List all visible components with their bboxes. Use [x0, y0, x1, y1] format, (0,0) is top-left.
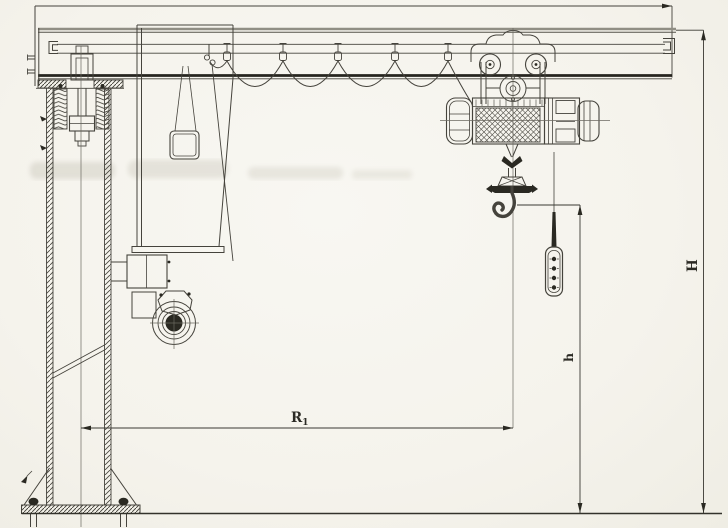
jib-top-outline — [35, 4, 672, 78]
base-plate — [22, 505, 141, 514]
control-box-body — [170, 131, 199, 159]
rope-drum — [476, 108, 540, 142]
pivot-shaft — [78, 88, 86, 116]
gusset-arrow — [21, 476, 28, 484]
dimension-radius: R1 — [81, 410, 513, 430]
pivot-tip-end — [78, 141, 86, 146]
terminal-box-bottom — [556, 129, 575, 142]
bearing-plate-right — [94, 80, 123, 88]
end-plate-bolts — [28, 55, 36, 75]
rope-socket — [502, 156, 523, 169]
motor-flange-rings — [549, 98, 553, 144]
flange-bolt — [159, 293, 162, 296]
frame-outline — [137, 25, 233, 247]
overall-height-label: H — [685, 259, 701, 272]
radius-label: R1 — [291, 410, 309, 428]
crossbar-horn-left — [486, 185, 492, 194]
pendant-strain-relief — [552, 212, 557, 247]
track-end-stop-right — [663, 39, 675, 54]
cable-anchor-clamp — [204, 55, 209, 60]
pendant-control — [546, 152, 563, 296]
anchor-bolt-right — [119, 498, 129, 506]
slew-drive — [111, 255, 199, 349]
column-base — [21, 468, 140, 527]
flange-bolt — [187, 292, 190, 295]
jib-beam — [28, 6, 677, 86]
pivot-tip — [75, 131, 89, 141]
hook-assembly — [486, 144, 538, 216]
dim-arrow-R-right — [503, 426, 513, 431]
anchor-bolt-left — [29, 498, 39, 506]
crossbar-horn-right — [532, 185, 538, 194]
track-end-stop-left — [49, 42, 58, 54]
rotating-frame — [132, 25, 233, 253]
motor-end-cap-lines — [584, 102, 590, 141]
control-box — [170, 66, 199, 159]
electric-hoist — [440, 28, 610, 428]
watermark-smudge — [30, 160, 412, 179]
gearbox-bolt — [168, 261, 171, 264]
dim-arrow-h-bottom — [578, 503, 583, 513]
drive-mount-links — [111, 262, 127, 281]
control-box-inner — [173, 134, 196, 156]
jib-envelope-line — [35, 6, 672, 78]
dim-arrow-h-top — [578, 205, 583, 215]
spring-stack-left — [54, 89, 67, 129]
bolt-head — [59, 84, 63, 88]
end-cap-lines — [449, 114, 470, 130]
gearbox-bolt — [168, 280, 171, 283]
hook-bell-cross — [498, 177, 526, 186]
festoon-loops — [210, 61, 471, 102]
dimension-hook-height: h — [517, 205, 582, 513]
wheel-axle — [489, 63, 492, 66]
motor-end-cap — [578, 101, 599, 141]
bolt-head — [101, 84, 105, 88]
dimension-overall-height: H — [676, 30, 706, 513]
festoon-track — [57, 44, 665, 53]
dim-arrow-H-bottom — [701, 503, 706, 513]
drive-lower-box — [132, 292, 156, 318]
hook-link — [509, 168, 516, 177]
arrowhead-right — [662, 4, 672, 9]
terminal-box-top — [556, 101, 575, 114]
hook-height-label: h — [561, 353, 576, 362]
pendant-buttons — [550, 257, 559, 290]
column-wall-left — [47, 88, 54, 505]
gusset-leader — [27, 471, 32, 476]
hanger-stems — [224, 44, 452, 53]
beam-end-plate-left — [35, 6, 39, 86]
weld-arrow — [40, 116, 47, 122]
gearbox — [127, 255, 167, 288]
dim-arrow-H-top — [701, 30, 706, 40]
hoist-ropes — [506, 144, 518, 157]
jib-crane-drawing: Pillar-mounted slewing jib crane with el… — [0, 0, 728, 528]
internal-brace — [53, 345, 105, 378]
column-wall-right — [105, 88, 112, 505]
anchor-bolt-shafts — [31, 514, 127, 528]
drawing-sheet: Pillar-mounted slewing jib crane with el… — [0, 0, 728, 528]
hoist-motor — [545, 98, 580, 144]
weld-arrow — [40, 145, 47, 151]
drum-end-cap-inner — [450, 101, 470, 141]
frame-bottom-flange — [132, 247, 224, 253]
cable-hangers — [224, 44, 452, 61]
dim-arrow-R-left — [81, 426, 91, 431]
hook-curve — [494, 193, 514, 216]
wheel-axle — [535, 63, 538, 66]
